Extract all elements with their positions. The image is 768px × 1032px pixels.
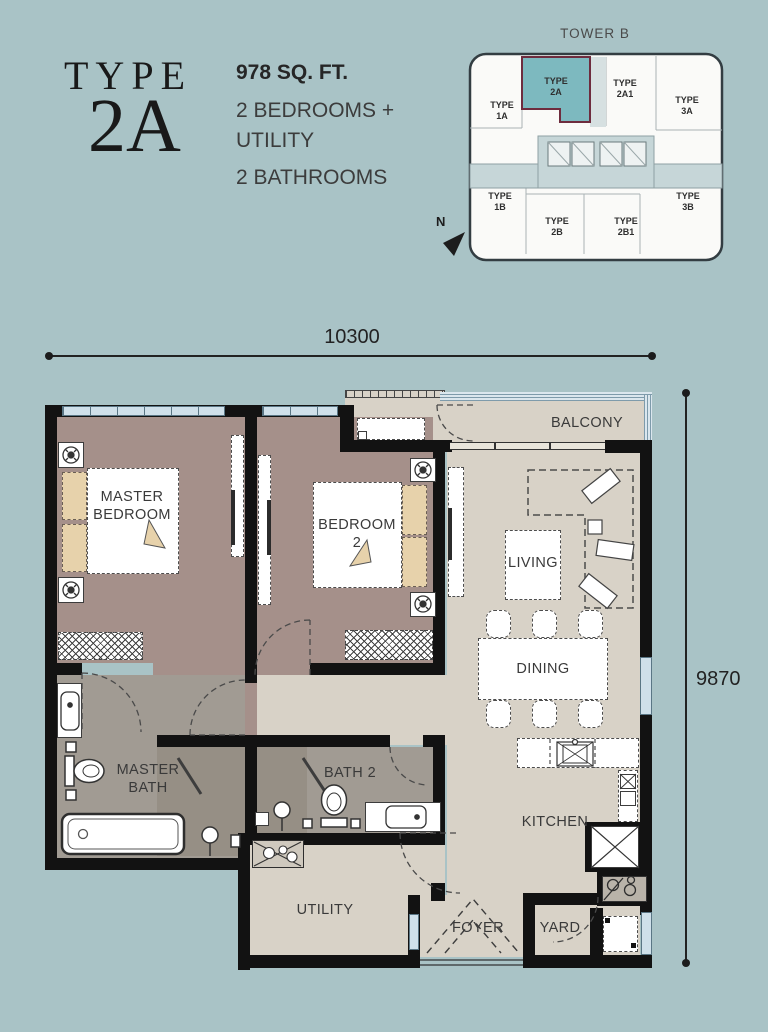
tower-unit-2a1: TYPE 2A1 xyxy=(603,78,647,100)
tower-unit-1b: TYPE 1B xyxy=(478,191,522,213)
living-tv xyxy=(448,508,452,560)
kitchen-label: KITCHEN xyxy=(505,813,605,831)
master-bath-label: MASTER BATH xyxy=(98,759,198,799)
tower-unit-3b: TYPE 3B xyxy=(666,191,710,213)
bedroom2-wardrobe xyxy=(345,630,433,660)
unit-type-code: 2A xyxy=(88,88,181,164)
tower-unit-1a: TYPE 1A xyxy=(480,100,524,122)
entry-threshold xyxy=(420,960,523,965)
laundry-sink xyxy=(252,840,304,868)
balcony-label: BALCONY xyxy=(537,414,637,432)
dining-chair xyxy=(532,700,557,728)
wall-bath2-top xyxy=(257,735,390,747)
yard-label: YARD xyxy=(510,919,610,937)
nightstand xyxy=(410,458,436,482)
dimension-dot xyxy=(682,959,690,967)
floor-plan: BALCONY MASTER BEDROOM BEDROOM 2 LIVING … xyxy=(45,390,657,968)
dining-chair xyxy=(578,610,603,638)
dimension-height-line xyxy=(685,393,687,963)
tower-unit-2b1: TYPE 2B1 xyxy=(604,216,648,238)
ac-unit xyxy=(357,418,425,440)
dimension-dot xyxy=(648,352,656,360)
yard-window xyxy=(641,912,652,955)
shower-drain xyxy=(255,812,269,826)
ac-unit-corner xyxy=(358,431,367,440)
dimension-dot xyxy=(682,389,690,397)
nightstand xyxy=(58,442,84,468)
bedroom2-label: BEDROOM 2 xyxy=(307,514,407,554)
unit-bedrooms: 2 BEDROOMS + UTILITY xyxy=(236,96,394,156)
wall-foyer-stub xyxy=(431,883,445,901)
dining-window xyxy=(640,657,652,715)
ac-ledge-louver xyxy=(345,390,445,398)
north-label: N xyxy=(436,214,445,229)
dimension-width-line xyxy=(49,355,652,357)
wall-bedroom-divider xyxy=(245,405,257,683)
wall-divider-lower xyxy=(245,735,257,845)
master-bath-vanity xyxy=(57,683,82,738)
tower-unit-2b: TYPE 2B xyxy=(535,216,579,238)
kitchen-appliance xyxy=(620,774,636,789)
door-opening xyxy=(245,683,257,735)
balcony-railing-right xyxy=(644,395,652,441)
bedroom2-tv xyxy=(267,500,271,555)
master-tv xyxy=(231,490,235,545)
balcony-sliding-door xyxy=(450,442,605,450)
dimension-height-label: 9870 xyxy=(696,668,741,691)
wall-utility-left xyxy=(238,833,250,970)
fridge xyxy=(591,826,639,868)
bath2-label: BATH 2 xyxy=(300,764,400,782)
tower-unit-2a: TYPE 2A xyxy=(534,76,578,98)
master-bedroom-label: MASTER BEDROOM xyxy=(82,486,182,526)
tower-keyplan xyxy=(462,48,728,266)
dining-chair xyxy=(486,700,511,728)
wall-bottom-right xyxy=(523,955,652,968)
stove xyxy=(602,876,647,902)
nightstand xyxy=(58,577,84,603)
wall-masterbath-bottom xyxy=(45,858,250,870)
wall-bath2-top-stub xyxy=(423,735,433,747)
kitchen-counter xyxy=(517,738,639,768)
dimension-width-label: 10300 xyxy=(252,326,452,349)
wall-corridor-bottom xyxy=(157,735,245,747)
wall-left xyxy=(45,405,57,870)
wall-yard-top xyxy=(535,893,600,905)
tower-title: TOWER B xyxy=(540,26,650,41)
north-arrow-icon xyxy=(440,228,470,258)
bedroom2-window xyxy=(262,406,338,416)
dining-chair xyxy=(578,700,603,728)
wall-bottom-left xyxy=(238,955,420,968)
kitchen-appliance xyxy=(620,791,636,806)
master-wardrobe xyxy=(58,632,143,660)
bath2-vanity xyxy=(365,802,441,832)
tower-unit-3a: TYPE 3A xyxy=(665,95,709,117)
dining-chair xyxy=(532,610,557,638)
nightstand xyxy=(410,592,436,617)
utility-window xyxy=(409,914,419,950)
dining-label: DINING xyxy=(493,660,593,678)
utility-label: UTILITY xyxy=(275,901,375,919)
wall-right-upper xyxy=(640,450,652,657)
pillow xyxy=(62,524,87,572)
floor-plan-page: TYPE 2A 978 SQ. FT. 2 BEDROOMS + UTILITY… xyxy=(0,0,768,1032)
wall-b2-bottom xyxy=(310,663,433,675)
wall-mb-bottom xyxy=(45,663,82,675)
unit-bathrooms: 2 BATHROOMS xyxy=(236,163,387,193)
master-bedroom-window xyxy=(62,406,225,416)
dimension-dot xyxy=(45,352,53,360)
living-label: LIVING xyxy=(483,554,583,572)
balcony-railing-top xyxy=(440,392,652,401)
dining-chair xyxy=(486,610,511,638)
washer-knob xyxy=(631,943,636,948)
unit-area: 978 SQ. FT. xyxy=(236,58,348,88)
